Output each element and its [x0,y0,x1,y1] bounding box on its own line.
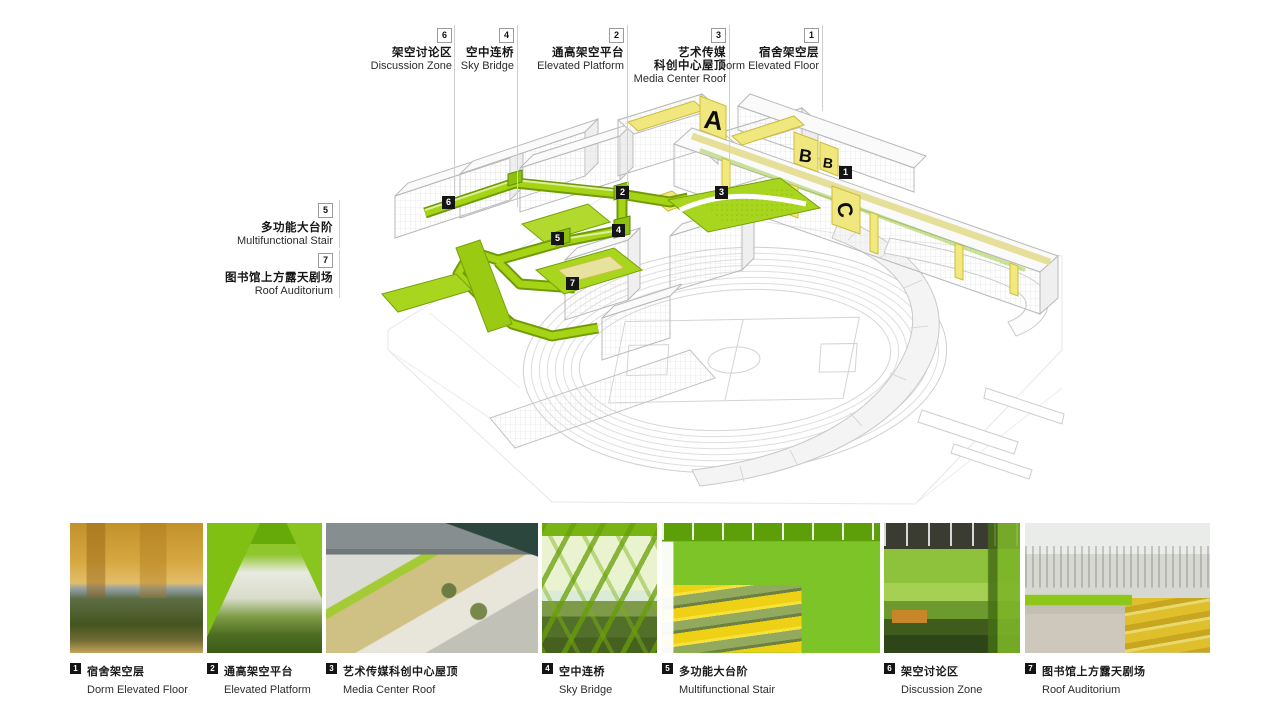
callout-roof-auditorium: 7 图书馆上方露天剧场 Roof Auditorium [163,250,333,298]
photo-roof-auditorium [1025,523,1210,653]
photo-caption: 2 通高架空平台 Elevated Platform [207,662,322,698]
letter-b1: B [798,145,814,167]
gallery-item-dorm-elevated-floor: 1 宿舍架空层 Dorm Elevated Floor [70,523,203,698]
callout-number: 1 [804,28,819,43]
gallery-item-multifunctional-stair: 5 多功能大台阶 Multifunctional Stair [662,523,880,698]
callout-zh: 宿舍架空层 [669,47,819,60]
caption-number-badge: 6 [884,663,895,674]
callout-number: 7 [318,253,333,268]
photo-discussion-zone [884,523,1020,653]
gallery-item-roof-auditorium: 7 图书馆上方露天剧场 Roof Auditorium [1025,523,1210,698]
caption-en: Multifunctional Stair [679,684,775,696]
caption-number-badge: 7 [1025,663,1036,674]
caption-number-badge: 3 [326,663,337,674]
gallery-item-sky-bridge: 4 空中连桥 Sky Bridge [542,523,657,698]
caption-en: Sky Bridge [559,684,612,696]
caption-en: Roof Auditorium [1042,684,1120,696]
drawing-marker-3: 3 [715,186,728,199]
drawing-marker-6: 6 [442,196,455,209]
photo-sky-bridge [542,523,657,653]
drawing-marker-7: 7 [566,277,579,290]
caption-en: Media Center Roof [343,684,435,696]
leader-line-1 [822,25,823,111]
callout-en: Dorm Elevated Floor [669,60,819,73]
presentation-sheet: A B B C 6 架空讨论区 Discussion Zon [0,0,1280,720]
photo-multifunctional-stair [662,523,880,653]
callout-zh: 图书馆上方露天剧场 [163,272,333,285]
gallery-item-media-center-roof: 3 艺术传媒科创中心屋顶 Media Center Roof [326,523,538,698]
drawing-marker-5: 5 [551,232,564,245]
callout-en: Media Center Roof [576,73,726,86]
caption-zh: 通高架空平台 [224,666,293,678]
caption-zh: 宿舍架空层 [87,666,145,678]
callout-zh: 多功能大台阶 [173,222,333,235]
caption-number-badge: 4 [542,663,553,674]
caption-zh: 空中连桥 [559,666,605,678]
gallery-item-discussion-zone: 6 架空讨论区 Discussion Zone [884,523,1020,698]
caption-number-badge: 1 [70,663,81,674]
leader-line-5 [339,200,340,248]
callout-dorm-elevated-floor: 1 宿舍架空层 Dorm Elevated Floor [669,25,819,73]
caption-zh: 架空讨论区 [901,666,959,678]
photo-caption: 5 多功能大台阶 Multifunctional Stair [662,662,880,698]
caption-en: Elevated Platform [224,684,311,696]
photo-elevated-platform [207,523,322,653]
axonometric-drawing: A B B C [370,88,1070,508]
drawing-marker-4: 4 [612,224,625,237]
photo-caption: 6 架空讨论区 Discussion Zone [884,662,1020,698]
caption-number-badge: 2 [207,663,218,674]
caption-en: Dorm Elevated Floor [87,684,188,696]
drawing-marker-2: 2 [616,186,629,199]
leader-line-7 [339,250,340,298]
callout-en: Roof Auditorium [163,285,333,298]
callout-number: 5 [318,203,333,218]
caption-number-badge: 5 [662,663,673,674]
caption-zh: 多功能大台阶 [679,666,748,678]
photo-caption: 7 图书馆上方露天剧场 Roof Auditorium [1025,662,1210,698]
callout-multifunctional-stair: 5 多功能大台阶 Multifunctional Stair [173,200,333,248]
photo-caption: 4 空中连桥 Sky Bridge [542,662,657,698]
caption-zh: 图书馆上方露天剧场 [1042,666,1146,678]
callout-en: Multifunctional Stair [173,235,333,248]
caption-zh: 艺术传媒科创中心屋顶 [343,666,458,678]
photo-caption: 3 艺术传媒科创中心屋顶 Media Center Roof [326,662,538,698]
photo-caption: 1 宿舍架空层 Dorm Elevated Floor [70,662,203,698]
drawing-marker-1: 1 [839,166,852,179]
gallery-item-elevated-platform: 2 通高架空平台 Elevated Platform [207,523,322,698]
photo-media-center-roof [326,523,538,653]
caption-en: Discussion Zone [901,684,982,696]
photo-dorm-elevated-floor [70,523,203,653]
